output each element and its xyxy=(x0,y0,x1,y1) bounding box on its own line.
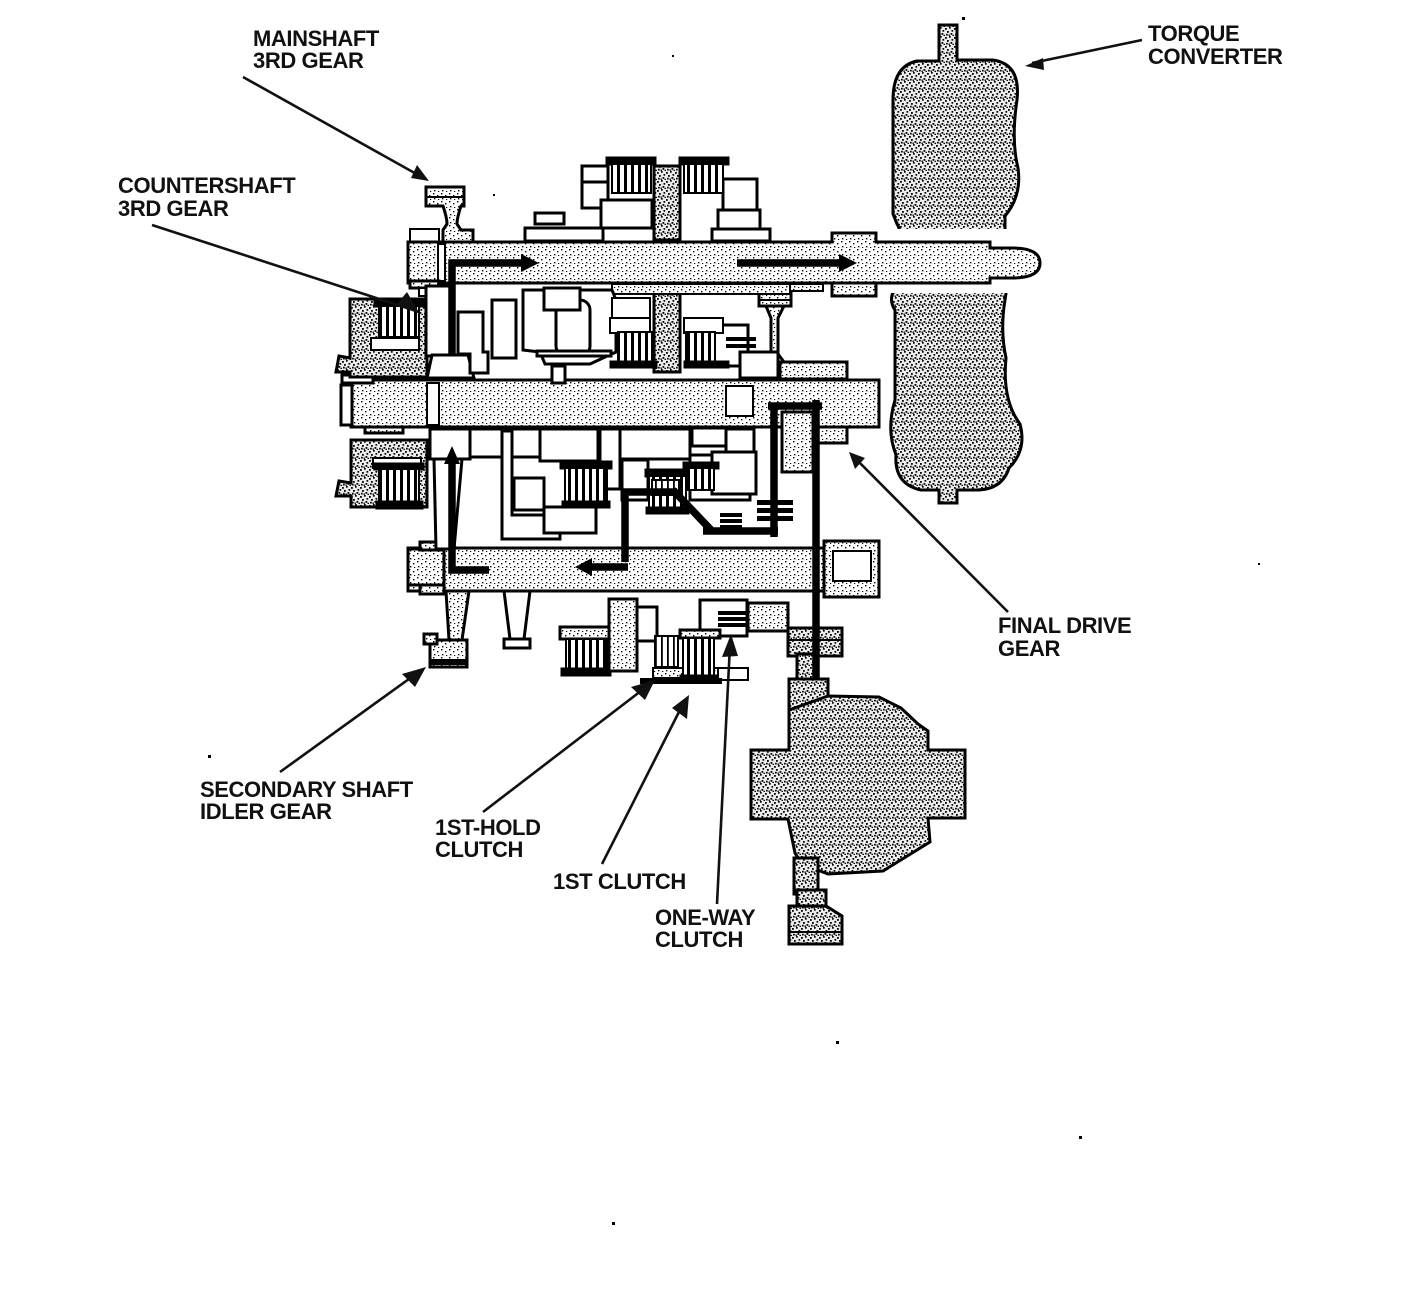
svg-text:FINAL DRIVE: FINAL DRIVE xyxy=(998,613,1131,638)
svg-text:COUNTERSHAFT: COUNTERSHAFT xyxy=(118,173,296,198)
svg-text:IDLER GEAR: IDLER GEAR xyxy=(200,799,332,824)
svg-text:TORQUE: TORQUE xyxy=(1148,21,1239,46)
svg-text:CLUTCH: CLUTCH xyxy=(435,837,523,862)
svg-text:1ST CLUTCH: 1ST CLUTCH xyxy=(553,869,686,894)
svg-text:CONVERTER: CONVERTER xyxy=(1148,44,1283,69)
svg-text:GEAR: GEAR xyxy=(998,636,1060,661)
svg-text:CLUTCH: CLUTCH xyxy=(655,927,743,952)
svg-text:3RD GEAR: 3RD GEAR xyxy=(253,48,364,73)
svg-text:3RD GEAR: 3RD GEAR xyxy=(118,196,229,221)
